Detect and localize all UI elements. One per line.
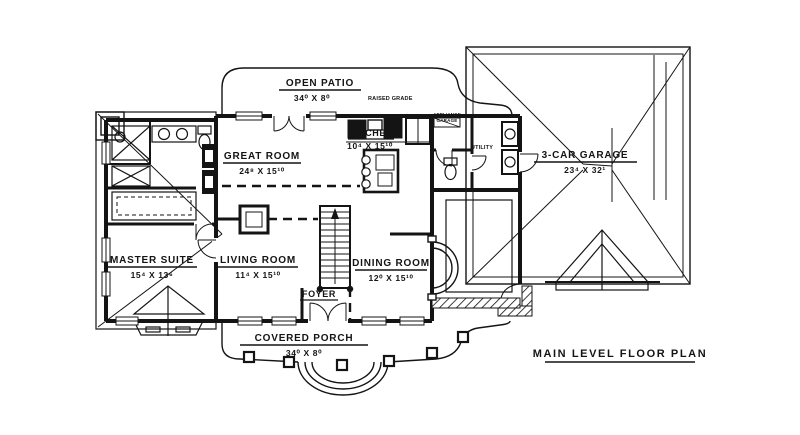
toilet-icon (444, 158, 457, 180)
staircase (317, 206, 353, 292)
room-label-open-patio: OPEN PATIO (286, 78, 354, 89)
washer-dryer-icon (502, 122, 518, 174)
room-dims-open-patio: 34⁰ X 8⁰ (294, 93, 330, 103)
patio-note: RAISED GRADE (368, 96, 413, 102)
kitchen-island (362, 150, 398, 192)
door-arc (196, 224, 212, 240)
fireplace (240, 206, 268, 233)
appliance-garage-label-1: APPLIANCE (433, 112, 461, 117)
garage-entry-gable (545, 230, 660, 290)
room-dims-living-room: 11⁴ X 15¹⁰ (235, 270, 280, 280)
drawing-title: MAIN LEVEL FLOOR PLAN (533, 348, 708, 360)
room-label-living-room: LIVING ROOM (220, 255, 296, 266)
stair-up-arrow (331, 208, 339, 219)
garage-block (466, 47, 690, 316)
appliance-garage-label-2: GARAGE (437, 118, 458, 123)
media-wall (202, 144, 216, 194)
room-dims-dining-room: 12⁰ X 15¹⁰ (369, 273, 414, 283)
room-dims-covered-porch: 34⁰ X 8⁰ (286, 348, 322, 358)
room-label-great-room: GREAT ROOM (224, 151, 300, 162)
room-label-kitchen: KITCHEN (349, 128, 393, 138)
room-dims-kitchen: 10⁴ X 15¹⁰ (347, 141, 393, 151)
double-vanity-icon (152, 126, 196, 142)
room-label-dining-room: DINING ROOM (352, 258, 430, 269)
room-label-covered-porch: COVERED PORCH (255, 333, 354, 344)
room-label-garage: 3-CAR GARAGE (542, 150, 629, 161)
room-dims-garage: 23⁴ X 32¹ (564, 165, 606, 175)
floor-plan-page: OPEN PATIO 34⁰ X 8⁰ RAISED GRADE GREAT R… (0, 0, 800, 435)
utility-label: UTILITY (471, 145, 493, 151)
open-patio-outline (222, 68, 512, 116)
sun-room (428, 200, 520, 308)
linen-closet-icon (112, 166, 150, 186)
floor-plan-drawing: OPEN PATIO 34⁰ X 8⁰ RAISED GRADE GREAT R… (0, 0, 800, 435)
room-label-foyer: FOYER (302, 289, 336, 299)
shower-icon (112, 126, 150, 160)
room-dims-master-suite: 15⁴ X 13⁶ (131, 270, 174, 280)
room-dims-great-room: 24⁸ X 15¹⁰ (239, 166, 285, 176)
room-label-master-suite: MASTER SUITE (110, 255, 194, 266)
